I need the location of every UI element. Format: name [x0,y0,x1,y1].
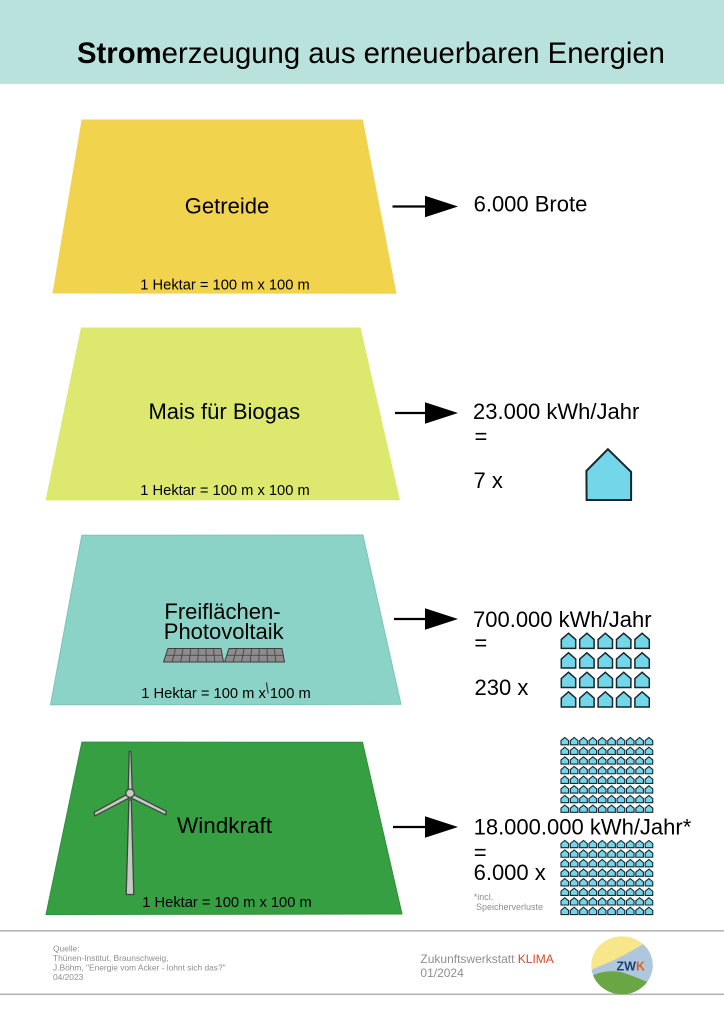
svg-text:Mais für Biogas: Mais für Biogas [148,399,300,424]
svg-text:230 x: 230 x [475,675,529,700]
svg-text:18.000.000 kWh/Jahr*: 18.000.000 kWh/Jahr* [474,815,692,840]
svg-text:6.000 x: 6.000 x [474,860,546,885]
svg-text:23.000 kWh/Jahr: 23.000 kWh/Jahr [473,399,639,424]
svg-text:Getreide: Getreide [185,194,269,219]
svg-text:J.Böhm, "Energie vom Acker - l: J.Böhm, "Energie vom Acker - lohnt sich … [53,963,226,973]
svg-text:=: = [474,631,487,656]
svg-text:700.000 kWh/Jahr: 700.000 kWh/Jahr [473,607,652,632]
svg-text:Thünen-Institut, Braunschweig,: Thünen-Institut, Braunschweig, [53,953,168,963]
svg-text:Photovoltaik: Photovoltaik [164,619,285,644]
svg-text:Zukunftswerkstatt KLIMA: Zukunftswerkstatt KLIMA [420,952,553,966]
svg-text:6.000 Brote: 6.000 Brote [474,192,588,217]
svg-text:04/2023: 04/2023 [53,972,84,982]
svg-text:=: = [475,424,488,449]
svg-text:01/2024: 01/2024 [420,966,464,980]
svg-text:Windkraft: Windkraft [177,813,273,838]
svg-text:1 Hektar = 100 m x 100 m: 1 Hektar = 100 m x 100 m [142,895,311,911]
svg-text:1 Hektar = 100 m x 100 m: 1 Hektar = 100 m x 100 m [140,483,309,499]
svg-text:Stromerzeugung aus erneuerbare: Stromerzeugung aus erneuerbaren Energien [77,37,665,70]
svg-text:1 Hektar = 100 m x 100 m: 1 Hektar = 100 m x 100 m [140,278,309,294]
svg-text:Quelle:: Quelle: [53,944,80,954]
svg-text:1 Hektar = 100 m x 100 m: 1 Hektar = 100 m x 100 m [141,686,310,702]
svg-text:ZWK: ZWK [617,959,645,973]
svg-text:Speicherverluste: Speicherverluste [476,902,543,912]
svg-text:7 x: 7 x [474,468,503,493]
svg-text:*incl.: *incl. [474,892,494,902]
